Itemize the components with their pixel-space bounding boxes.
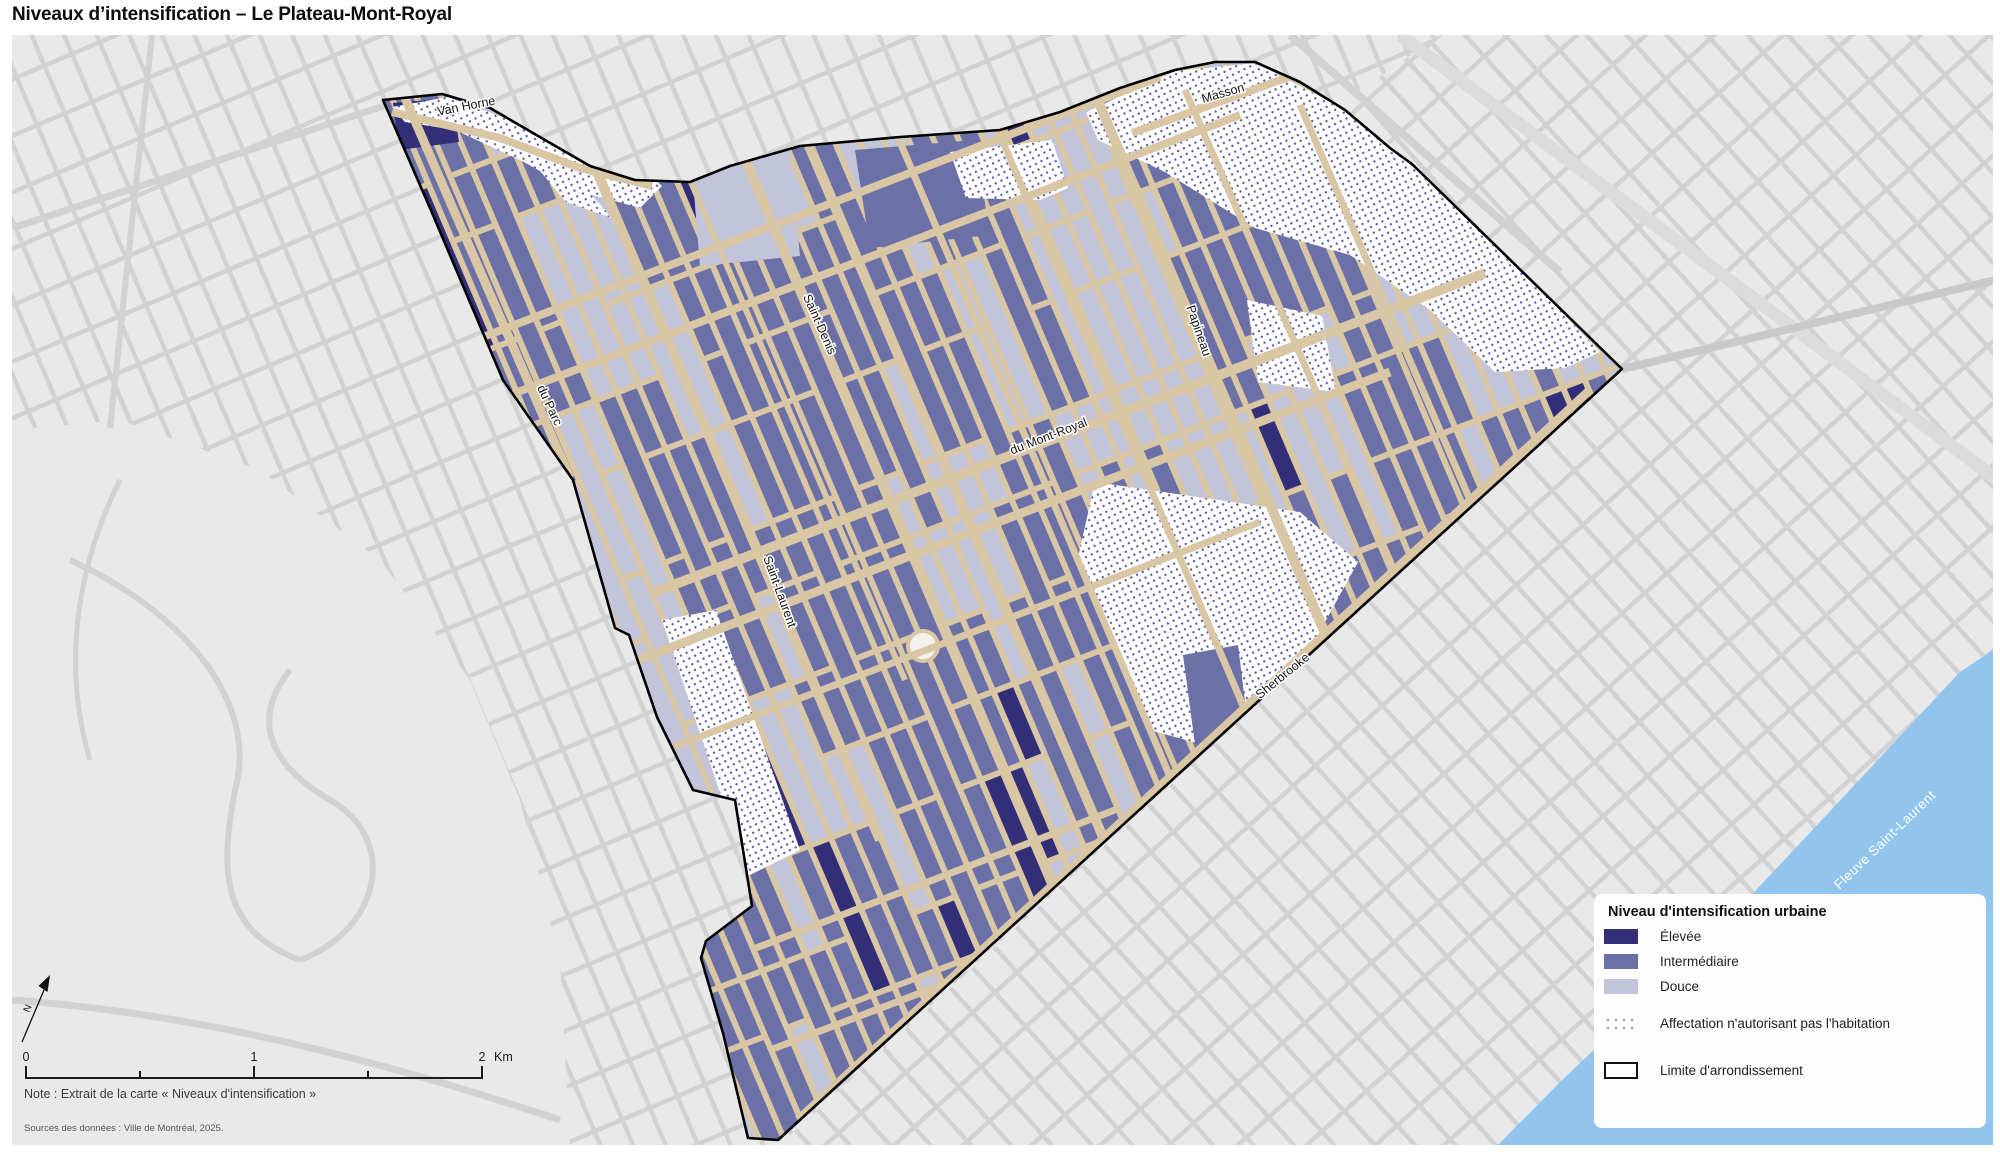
legend-item-pattern: Affectation n'autorisant pas l'habitatio… — [1604, 1011, 1986, 1036]
legend-item-boundary: Limite d'arrondissement — [1604, 1058, 1986, 1083]
legend-item-label: Affectation n'autorisant pas l'habitatio… — [1660, 1016, 1890, 1031]
legend-item-intermediaire: Intermédiaire — [1604, 949, 1986, 974]
legend-item-label: Limite d'arrondissement — [1660, 1063, 1803, 1078]
map-note: Note : Extrait de la carte « Niveaux d'i… — [24, 1087, 316, 1101]
boundary-swatch — [1604, 1062, 1638, 1079]
legend-item-label: Élevée — [1660, 929, 1701, 944]
legend-item-label: Douce — [1660, 979, 1699, 994]
data-sources: Sources des données : Ville de Montréal,… — [24, 1123, 223, 1134]
page-title: Niveaux d’intensification – Le Plateau-M… — [12, 4, 452, 26]
scale-label-mid: 1 — [251, 1050, 258, 1064]
douce-swatch — [1604, 979, 1638, 994]
dotted-pattern-swatch — [1604, 1016, 1638, 1031]
intermediaire-swatch — [1604, 954, 1638, 969]
scale-label-end: 2 — [479, 1050, 486, 1064]
legend-title: Niveau d'intensification urbaine — [1608, 904, 1986, 920]
eleve-swatch — [1604, 929, 1638, 944]
legend-item-douce: Douce — [1604, 974, 1986, 999]
legend: Niveau d'intensification urbaine Élevée … — [1594, 894, 1986, 1128]
scale-unit-label: Km — [494, 1050, 513, 1064]
legend-item-elevee: Élevée — [1604, 924, 1986, 949]
scale-label-start: 0 — [23, 1050, 30, 1064]
legend-item-label: Intermédiaire — [1660, 954, 1739, 969]
